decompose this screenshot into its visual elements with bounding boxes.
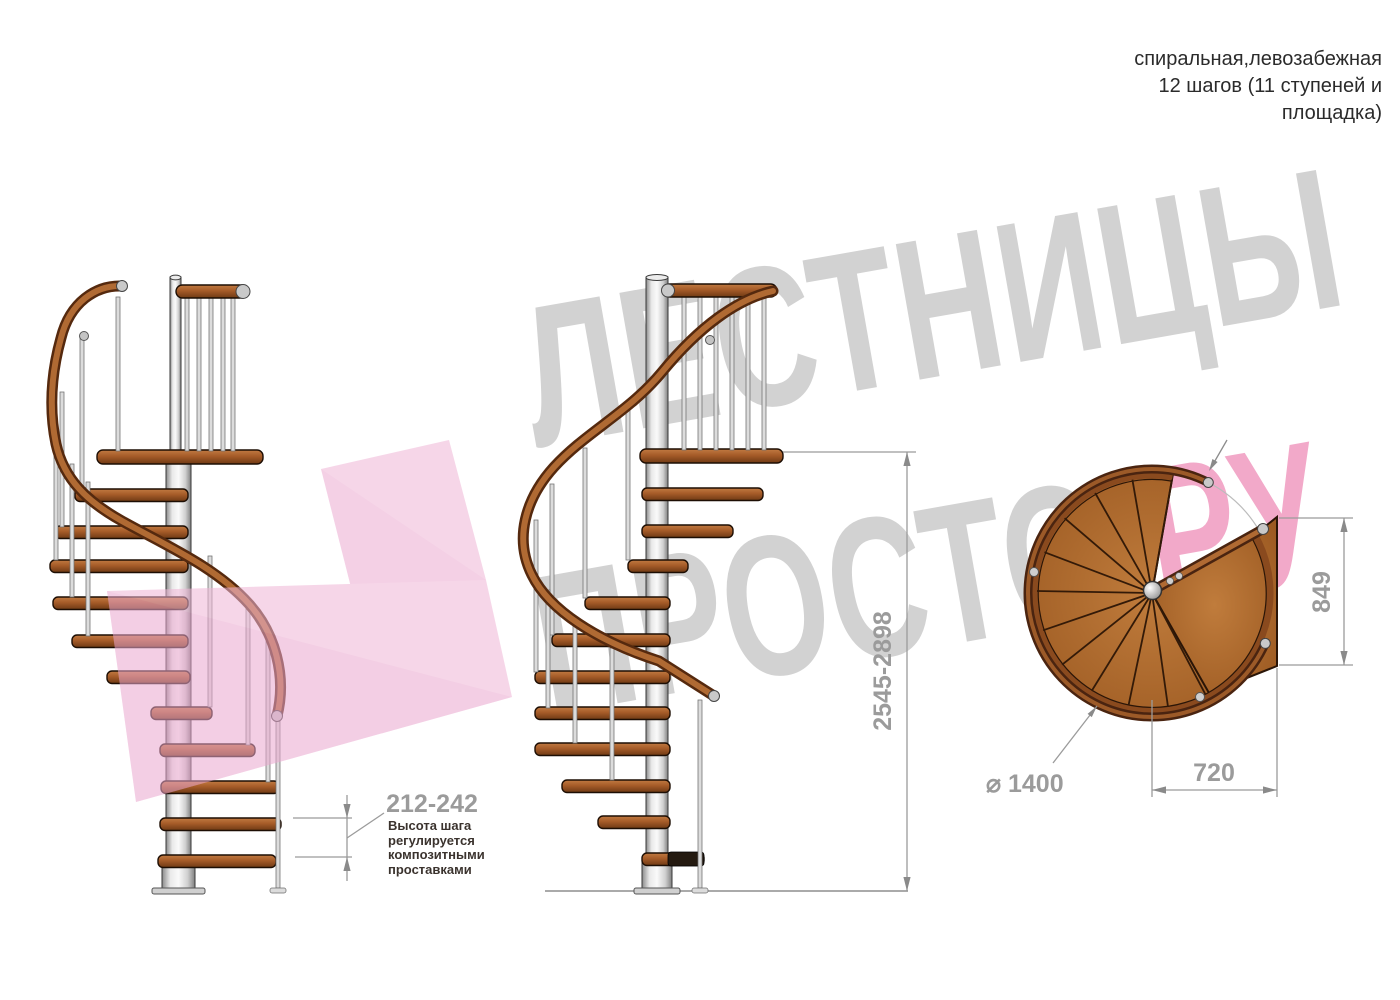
arrow-up-icon [343, 857, 350, 871]
leader-line [347, 813, 384, 838]
baluster [610, 648, 614, 780]
left-staircase-elevation [50, 275, 286, 894]
arrow-down-icon [343, 804, 350, 818]
step [585, 597, 670, 610]
rail-end-cap [1258, 524, 1269, 535]
drawing-page: ЛЕСТНИЦЫ ПРОСТО РУ [0, 0, 1400, 1000]
rail-end-cap [1260, 638, 1270, 648]
step [97, 450, 263, 464]
pole-base-flange [634, 888, 680, 894]
pole-cap [646, 275, 668, 281]
step [158, 855, 276, 868]
arrow-up-icon [903, 452, 910, 466]
rail-end-cap [117, 281, 128, 292]
baluster [698, 297, 702, 450]
baluster-flange [692, 888, 708, 893]
rail-end-cap [1203, 478, 1213, 488]
baluster [550, 484, 554, 635]
step [642, 488, 763, 501]
dim-diameter-label: ⌀ 1400 [986, 770, 1064, 798]
rail-collar [1167, 578, 1174, 585]
step-height-note: Высота шага регулируется композитными пр… [388, 819, 485, 877]
step [535, 707, 670, 720]
step [535, 671, 670, 684]
title-block: спиральная,левозабежная 12 шагов (11 сту… [1134, 46, 1382, 127]
rail-joint [706, 336, 715, 345]
rail-collar [1176, 573, 1183, 580]
step [160, 818, 281, 831]
step [642, 525, 733, 538]
middle-staircase-elevation [523, 275, 908, 895]
note-line-1: Высота шага [388, 819, 485, 834]
baluster [221, 298, 225, 451]
baluster-dot [1030, 568, 1039, 577]
title-line-2: 12 шагов (11 ступеней и [1134, 73, 1382, 100]
baluster [546, 590, 550, 708]
baluster [626, 408, 630, 560]
step [535, 743, 670, 756]
baluster [730, 297, 734, 450]
note-line-3: композитными [388, 848, 485, 863]
title-line-3: площадка) [1134, 100, 1382, 127]
baluster [573, 625, 577, 743]
baluster-flange [270, 888, 286, 893]
step [55, 526, 188, 539]
baluster-dot [1196, 693, 1205, 702]
rail-joint [80, 332, 89, 341]
pole-base-flange [152, 888, 205, 894]
baluster [583, 448, 587, 598]
baluster [746, 297, 750, 450]
newel-post [170, 277, 181, 453]
arrow-right-icon [1263, 786, 1277, 793]
note-line-4: проставками [388, 863, 485, 878]
dim-step-height-label: 212-242 [386, 790, 478, 818]
step [598, 816, 670, 829]
rail-end-cap [662, 284, 675, 297]
step [628, 560, 688, 573]
dim-platform-depth-label: 849 [1308, 571, 1336, 613]
baluster [534, 520, 538, 672]
baluster [762, 297, 766, 450]
arrow-down-icon [903, 877, 910, 891]
baluster [197, 298, 201, 451]
arrow-down-left-icon [1209, 459, 1218, 471]
rail-end-cap [709, 691, 720, 702]
baluster [698, 700, 702, 888]
dim-platform-width-label: 720 [1193, 759, 1235, 787]
baluster [80, 337, 84, 489]
dim-total-height-label: 2545-2898 [869, 611, 897, 731]
note-line-2: регулируется [388, 834, 485, 849]
rail-end-cap [236, 285, 250, 299]
step [640, 449, 783, 463]
staircase-drawing: 212-242 2545-2898 849 720 ⌀ 1400 [0, 0, 1400, 1000]
step [562, 780, 670, 793]
baluster [209, 298, 213, 451]
baluster [231, 298, 235, 451]
arrow-down-icon [1340, 651, 1347, 665]
arrow-up-icon [1340, 518, 1347, 532]
plan-view [1028, 469, 1277, 717]
arrow-left-icon [1152, 786, 1166, 793]
center-pole-hub [1144, 582, 1162, 600]
baluster [116, 297, 120, 451]
title-line-1: спиральная,левозабежная [1134, 46, 1382, 73]
baluster [185, 298, 189, 451]
baluster [682, 297, 686, 450]
newel-cap [170, 275, 181, 280]
